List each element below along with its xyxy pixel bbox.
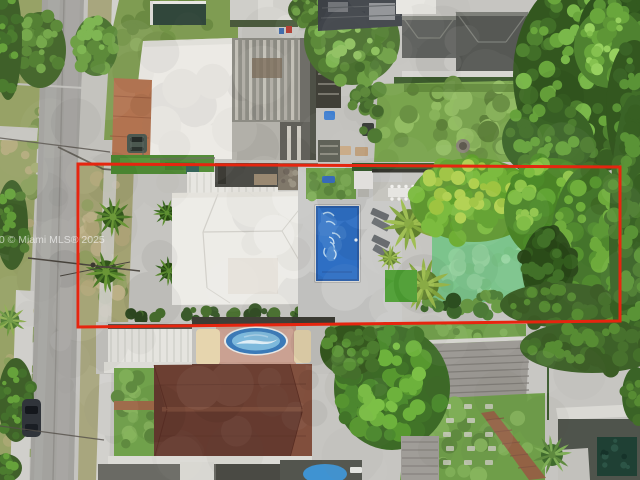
- svg-text:90 © Miami MLS® 2025: 90 © Miami MLS® 2025: [0, 234, 105, 246]
